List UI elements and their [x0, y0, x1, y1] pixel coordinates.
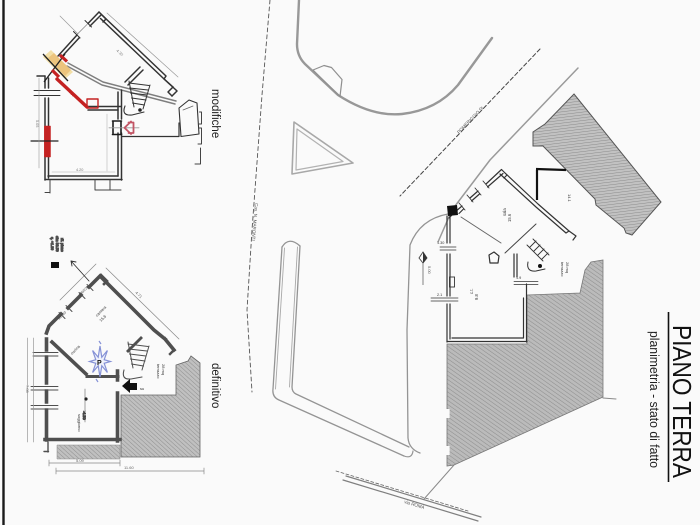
- svg-text:planimetria - stato di fatto: planimetria - stato di fatto: [647, 331, 662, 468]
- svg-text:7.05: 7.05: [25, 385, 30, 394]
- svg-text:4.30: 4.30: [115, 48, 125, 57]
- svg-text:PIANO TERRA: PIANO TERRA: [667, 325, 697, 479]
- svg-text:Cas. N. MARONTI: Cas. N. MARONTI: [251, 203, 259, 241]
- svg-text:modifiche: modifiche: [209, 89, 221, 138]
- svg-text:5.00: 5.00: [427, 266, 432, 275]
- svg-text:q. +1.30: q. +1.30: [50, 237, 54, 250]
- svg-text:POMERIGGIO St.: POMERIGGIO St.: [456, 105, 485, 135]
- svg-text:9.8: 9.8: [474, 294, 479, 300]
- svg-text:definitivo: definitivo: [209, 363, 221, 408]
- svg-text:P: P: [97, 360, 102, 367]
- svg-text:c.t.: c.t.: [469, 288, 474, 294]
- svg-text:15.6: 15.6: [507, 213, 512, 222]
- svg-text:5.05: 5.05: [35, 120, 39, 127]
- svg-text:120/220: 120/220: [78, 285, 90, 297]
- svg-text:28 mq: 28 mq: [565, 262, 570, 273]
- svg-text:slm 38.50: slm 38.50: [55, 236, 59, 252]
- svg-text:5.09: 5.09: [76, 458, 85, 463]
- svg-text:terrazzo: terrazzo: [156, 364, 161, 379]
- svg-text:terrazzo: terrazzo: [560, 262, 565, 277]
- svg-text:rif. piano: rif. piano: [60, 238, 64, 252]
- svg-text:4.20: 4.20: [76, 168, 83, 172]
- svg-text:11.60: 11.60: [124, 465, 134, 470]
- svg-text:28 mq: 28 mq: [161, 364, 166, 375]
- svg-text:14.1: 14.1: [567, 194, 572, 203]
- svg-text:1.9: 1.9: [516, 276, 521, 280]
- svg-text:16.10: 16.10: [82, 410, 87, 421]
- svg-text:cucina: cucina: [69, 343, 81, 355]
- svg-text:2.1: 2.1: [437, 293, 442, 297]
- svg-text:4.71: 4.71: [134, 290, 144, 300]
- svg-text:1.30: 1.30: [437, 241, 444, 245]
- svg-text:via ROMA: via ROMA: [404, 499, 426, 510]
- svg-text:soggiorno: soggiorno: [77, 414, 82, 432]
- svg-text:90/220: 90/220: [57, 310, 67, 320]
- svg-text:su: su: [140, 386, 144, 391]
